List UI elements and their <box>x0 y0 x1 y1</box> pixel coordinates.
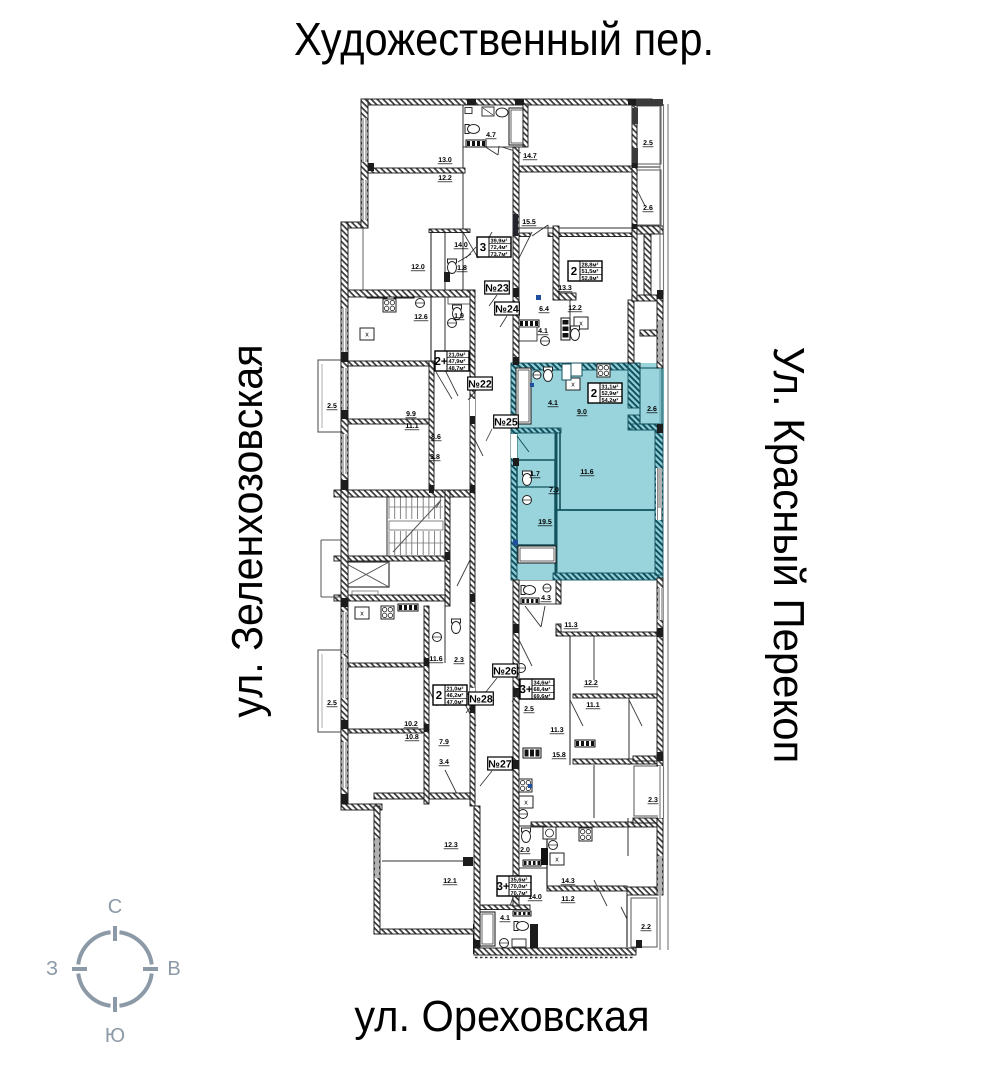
svg-text:12.0: 12.0 <box>411 264 425 271</box>
svg-text:3.8: 3.8 <box>430 454 440 461</box>
svg-text:12.3: 12.3 <box>444 842 458 849</box>
svg-text:2+: 2+ <box>434 356 447 368</box>
svg-text:9.0: 9.0 <box>577 409 587 416</box>
svg-text:68,4м²: 68,4м² <box>534 687 551 693</box>
svg-text:70,7м²: 70,7м² <box>511 891 528 897</box>
svg-text:x: x <box>365 332 369 339</box>
svg-text:21,0м²: 21,0м² <box>449 353 466 359</box>
svg-text:3+: 3+ <box>519 684 532 696</box>
svg-text:№24: №24 <box>495 304 519 316</box>
svg-text:№23: №23 <box>485 283 509 295</box>
svg-text:52,8м²: 52,8м² <box>582 276 599 282</box>
svg-text:№27: №27 <box>488 759 512 771</box>
svg-text:15.5: 15.5 <box>522 219 536 226</box>
svg-text:4.1: 4.1 <box>538 328 548 335</box>
svg-text:10.8: 10.8 <box>405 734 419 741</box>
svg-text:6.4: 6.4 <box>539 306 549 313</box>
svg-text:2: 2 <box>571 266 577 278</box>
svg-text:2.6: 2.6 <box>643 205 653 212</box>
svg-text:69,6м²: 69,6м² <box>534 694 551 700</box>
svg-text:№28: №28 <box>469 694 493 706</box>
svg-text:9.9: 9.9 <box>406 411 416 418</box>
svg-text:2.3: 2.3 <box>648 797 658 804</box>
svg-text:11.3: 11.3 <box>550 727 563 734</box>
svg-text:12.1: 12.1 <box>443 878 457 885</box>
svg-text:51,5м²: 51,5м² <box>582 269 599 275</box>
svg-text:14.0: 14.0 <box>454 242 468 249</box>
svg-text:1.7: 1.7 <box>530 471 540 478</box>
svg-text:10.2: 10.2 <box>404 721 418 728</box>
svg-text:8.6: 8.6 <box>431 434 441 441</box>
svg-text:11.1: 11.1 <box>586 702 599 709</box>
svg-text:2.2: 2.2 <box>641 924 651 931</box>
svg-text:31,1м²: 31,1м² <box>602 385 619 391</box>
svg-text:x: x <box>555 857 559 864</box>
svg-text:11.2: 11.2 <box>561 896 574 903</box>
svg-text:x: x <box>524 800 528 807</box>
svg-text:3+: 3+ <box>496 881 509 893</box>
svg-text:73,7м²: 73,7м² <box>491 252 508 258</box>
svg-text:52,9м²: 52,9м² <box>602 391 619 397</box>
svg-text:46,2м²: 46,2м² <box>447 693 464 699</box>
svg-text:В: В <box>167 958 180 980</box>
svg-text:7.0: 7.0 <box>549 487 559 494</box>
svg-text:12.2: 12.2 <box>438 175 452 182</box>
svg-text:2: 2 <box>591 388 597 400</box>
svg-text:70,0м²: 70,0м² <box>511 884 528 890</box>
svg-text:13.0: 13.0 <box>438 157 452 164</box>
svg-text:2.0: 2.0 <box>520 847 530 854</box>
svg-text:№26: №26 <box>493 666 517 678</box>
svg-text:11.1: 11.1 <box>405 423 418 430</box>
svg-text:4.7: 4.7 <box>486 132 496 139</box>
svg-text:4.3: 4.3 <box>541 595 551 602</box>
svg-text:4.1: 4.1 <box>548 400 558 407</box>
svg-text:19.5: 19.5 <box>538 519 552 526</box>
svg-text:2.5: 2.5 <box>524 706 534 713</box>
svg-text:2.5: 2.5 <box>327 700 337 707</box>
svg-text:x: x <box>360 611 364 618</box>
svg-text:3: 3 <box>480 242 486 254</box>
svg-text:1.8: 1.8 <box>457 265 467 272</box>
svg-text:x: x <box>571 382 575 389</box>
svg-text:34,6м²: 34,6м² <box>534 681 551 687</box>
svg-text:2.6: 2.6 <box>647 406 657 413</box>
svg-text:15.8: 15.8 <box>552 752 566 759</box>
svg-text:54,2м²: 54,2м² <box>602 398 619 404</box>
svg-text:С: С <box>108 896 122 918</box>
svg-text:11.6: 11.6 <box>429 656 442 663</box>
svg-text:№25: №25 <box>494 417 518 429</box>
svg-text:2: 2 <box>436 690 442 702</box>
svg-text:2.3: 2.3 <box>454 657 464 664</box>
svg-text:48,7м²: 48,7м² <box>449 366 466 372</box>
svg-text:47,0м²: 47,0м² <box>447 700 464 706</box>
svg-text:28,8м²: 28,8м² <box>582 263 599 269</box>
svg-text:4.1: 4.1 <box>500 915 510 922</box>
svg-text:21,0м²: 21,0м² <box>447 687 464 693</box>
svg-text:12.2: 12.2 <box>584 680 598 687</box>
svg-text:39,9м²: 39,9м² <box>491 239 508 245</box>
svg-text:72,4м²: 72,4м² <box>491 245 508 251</box>
svg-text:14.7: 14.7 <box>523 153 537 160</box>
svg-text:Ю: Ю <box>105 1025 125 1047</box>
svg-text:№22: №22 <box>468 379 492 391</box>
svg-text:12.2: 12.2 <box>568 305 582 312</box>
svg-text:1.9: 1.9 <box>454 313 464 320</box>
svg-text:7.9: 7.9 <box>439 739 449 746</box>
svg-text:11.6: 11.6 <box>580 469 593 476</box>
svg-text:13.3: 13.3 <box>558 285 572 292</box>
svg-text:12.6: 12.6 <box>414 314 428 321</box>
svg-text:47,9м²: 47,9м² <box>449 359 466 365</box>
svg-text:3.4: 3.4 <box>439 759 449 766</box>
svg-text:11.3: 11.3 <box>564 622 577 629</box>
svg-text:З: З <box>46 958 58 980</box>
svg-text:35,6м²: 35,6м² <box>511 878 528 884</box>
svg-text:14.3: 14.3 <box>561 878 575 885</box>
svg-text:2.5: 2.5 <box>327 403 337 410</box>
svg-text:2.5: 2.5 <box>643 140 653 147</box>
